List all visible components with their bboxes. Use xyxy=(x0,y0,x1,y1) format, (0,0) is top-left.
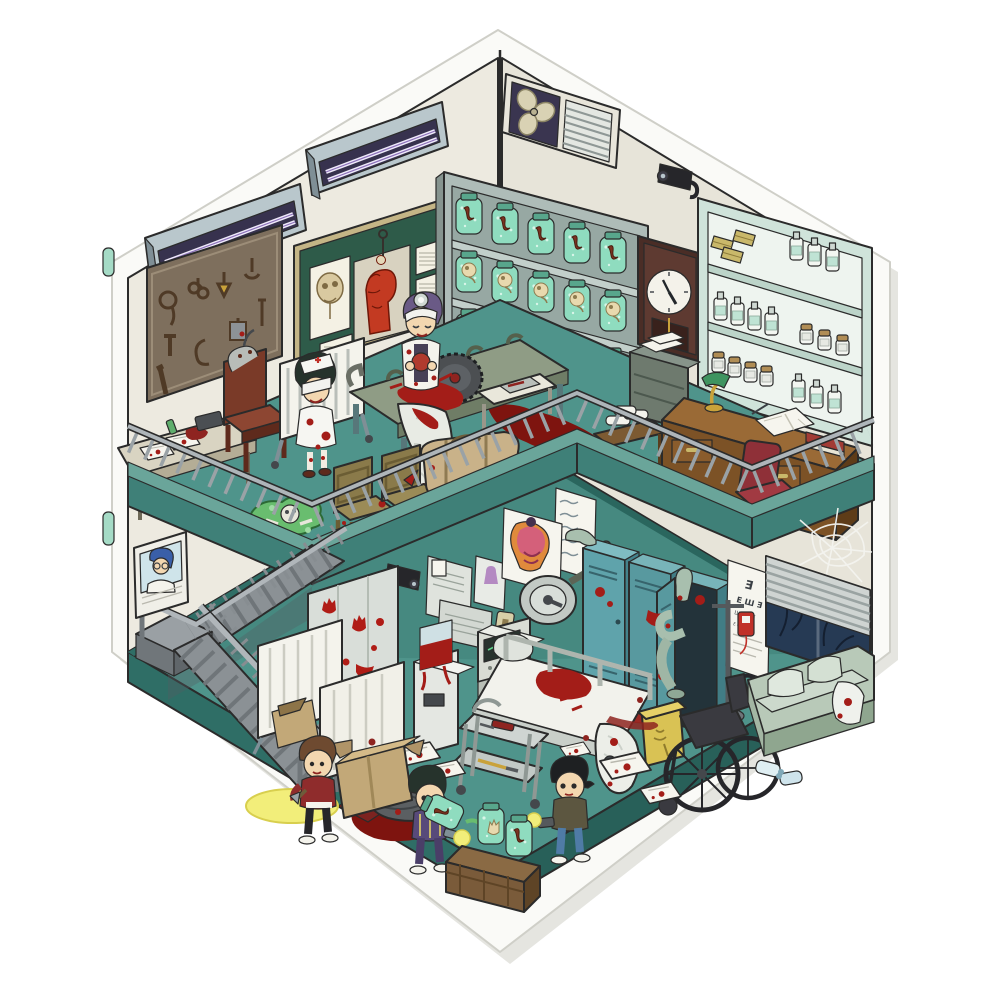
scene-svg: die-cut sticker base left wall right wal… xyxy=(0,0,1000,1000)
face xyxy=(556,772,584,800)
nurse-dress xyxy=(296,406,336,448)
held-organ xyxy=(412,353,430,371)
portrait: framed portrait of a blue-haired doctor xyxy=(134,532,188,618)
sharps-bin: yellow sharps bin xyxy=(638,701,686,766)
sticker-diorama: die-cut sticker base left wall right wal… xyxy=(0,0,1000,1000)
sticker-tab xyxy=(103,248,114,276)
sticker-tab xyxy=(103,512,114,545)
blood-bag xyxy=(738,612,754,636)
shirt xyxy=(552,797,588,831)
